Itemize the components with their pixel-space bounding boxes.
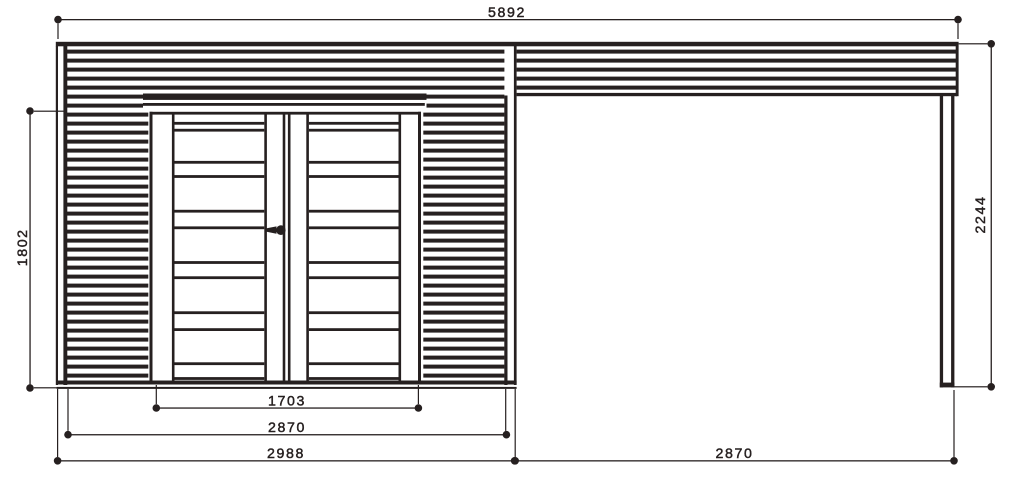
svg-text:2870: 2870 <box>716 446 754 462</box>
svg-text:2988: 2988 <box>267 446 305 462</box>
svg-text:1802: 1802 <box>15 228 31 266</box>
svg-text:1703: 1703 <box>268 393 306 409</box>
svg-text:5892: 5892 <box>488 5 526 21</box>
svg-text:2870: 2870 <box>268 420 306 436</box>
svg-text:2244: 2244 <box>973 196 989 234</box>
